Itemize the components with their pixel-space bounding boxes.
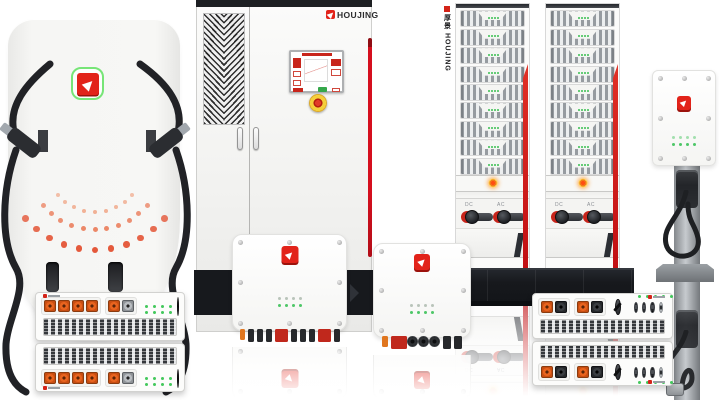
- power-module: [460, 139, 525, 156]
- screw-icon: [461, 328, 466, 333]
- status-leds-row2: [672, 143, 675, 146]
- module-handle: [478, 122, 508, 131]
- status-leds-row1: [278, 297, 281, 300]
- panel-separator: [456, 375, 529, 382]
- cable-right-upper: [140, 64, 179, 132]
- screw-icon: [238, 321, 243, 326]
- brand-logo-icon: ▶: [414, 254, 430, 270]
- terminal-black: [443, 336, 451, 349]
- screw-icon: [337, 390, 342, 395]
- module-leds: [578, 109, 580, 111]
- round-connector: [634, 367, 638, 378]
- screw-icon: [706, 76, 711, 81]
- dc-switch-label: DC: [465, 366, 473, 372]
- vent-grille: [43, 318, 177, 336]
- screw-icon: [658, 116, 663, 121]
- tower-accent-stripe: [613, 64, 618, 269]
- port-pair: [574, 363, 606, 381]
- brand-chip: [648, 380, 665, 384]
- screw-icon: [337, 321, 342, 326]
- screw-icon: [379, 390, 384, 395]
- status-leds: [638, 381, 641, 384]
- wallbox-2-face: ▶: [373, 243, 471, 355]
- arrow-cursor-icon: ▶: [416, 256, 427, 267]
- ac-switch-label: AC: [497, 202, 505, 208]
- power-module: [550, 10, 615, 27]
- module-handle: [568, 85, 598, 94]
- brand-wordmark-vertical: 厚景 HOUJING: [442, 14, 452, 72]
- aux-ports: [105, 297, 137, 315]
- module-handle: [568, 67, 598, 76]
- power-module: [460, 10, 525, 27]
- terminal-strip: [232, 329, 347, 342]
- hmi-header: [302, 53, 332, 56]
- module-handle: [478, 48, 508, 57]
- module-handle: [568, 11, 598, 20]
- wallbox-charger-1: ▶: [232, 234, 347, 347]
- vent-grille: [540, 319, 665, 334]
- status-light: [578, 179, 587, 188]
- status-leds-row1: [410, 304, 413, 307]
- tower-accent-stripe: [523, 306, 528, 400]
- dark-trim: [604, 233, 614, 257]
- connector-row: [538, 296, 667, 318]
- ac-rotary-switch[interactable]: AC: [493, 205, 527, 225]
- hmi-tile: [332, 88, 340, 92]
- screw-icon: [337, 280, 342, 285]
- module-leds: [578, 146, 580, 148]
- dark-trim: [514, 233, 524, 257]
- arrow-cursor-icon: ▶: [284, 374, 295, 385]
- terminal-red: [318, 329, 331, 342]
- module-handle: [568, 103, 598, 112]
- module-leds: [488, 72, 490, 74]
- round-connector-metal: [659, 302, 663, 313]
- switch-knob: [497, 350, 511, 364]
- terminal-black: [454, 336, 462, 349]
- charger-cable: [658, 190, 714, 270]
- terminal-black: [266, 329, 272, 342]
- arrow-cursor-icon: ▶: [679, 98, 689, 108]
- screw-icon: [658, 76, 663, 81]
- power-module: [460, 47, 525, 64]
- screw-icon: [706, 156, 711, 161]
- module-leds: [488, 90, 490, 92]
- switch-knob: [587, 210, 601, 224]
- screw-icon: [238, 280, 243, 285]
- terminal-black: [248, 329, 254, 342]
- logo-red-square: ▶: [326, 10, 335, 19]
- ac-switch-label: AC: [587, 202, 595, 208]
- screw-icon: [379, 328, 384, 333]
- module-handle: [568, 48, 598, 57]
- status-light: [578, 386, 587, 395]
- cabinet-top-strip: [196, 0, 372, 7]
- arrow-cursor-icon: ▶: [416, 376, 427, 387]
- rack-module: [35, 292, 185, 341]
- rotary-knob[interactable]: [615, 299, 621, 315]
- module-handle: [568, 122, 598, 131]
- ac-rotary-switch: AC: [493, 349, 527, 369]
- brand-chip: [43, 386, 60, 390]
- cooling-fan-icon: [177, 297, 179, 316]
- brand-chip: [43, 294, 60, 298]
- wallbox-housing: [373, 355, 471, 400]
- screw-icon: [337, 349, 342, 354]
- terminal-black: [334, 329, 340, 342]
- module-stack: [456, 8, 529, 175]
- power-module: [550, 139, 615, 156]
- power-module: [460, 66, 525, 83]
- round-connector: [642, 367, 646, 378]
- screw-icon: [658, 156, 663, 161]
- module-handle: [568, 30, 598, 39]
- module-leds: [578, 72, 580, 74]
- dc-switch-label: DC: [555, 202, 563, 208]
- hmi-menu-item: [293, 71, 301, 77]
- power-module: [460, 29, 525, 46]
- status-light-band: [456, 382, 529, 399]
- cooling-fan-icon: [177, 369, 179, 388]
- round-connector-metal: [659, 367, 663, 378]
- terminal-black: [291, 329, 297, 342]
- charging-gun-left: [0, 120, 43, 160]
- switch-red-cap: [493, 351, 505, 363]
- screw-icon: [461, 249, 466, 254]
- dc-switch-label: DC: [465, 202, 473, 208]
- screw-icon: [238, 240, 243, 245]
- terminal-red: [275, 329, 288, 342]
- terminal-round: [418, 336, 429, 347]
- status-leds-row2: [278, 304, 281, 307]
- wallbox-charger-2: ▶: [373, 243, 471, 355]
- cable-left-lower: [5, 150, 26, 392]
- hmi-menu-item: [293, 80, 301, 86]
- switch-knob: [497, 210, 511, 224]
- screw-icon: [420, 249, 425, 254]
- emergency-stop-button[interactable]: [309, 94, 327, 112]
- hmi-screen[interactable]: [289, 50, 344, 93]
- module-leds: [578, 54, 580, 56]
- port-pair: [574, 298, 606, 316]
- screw-icon: [682, 76, 687, 81]
- terminal-black: [309, 329, 315, 342]
- wallbox-1-face: ▶: [232, 234, 347, 347]
- terminal-round: [429, 336, 440, 347]
- terminal-red: [391, 336, 407, 349]
- status-leds-row1: [672, 136, 675, 139]
- rotary-knob[interactable]: [615, 364, 621, 380]
- screw-icon: [238, 390, 243, 395]
- hmi-tile: [331, 59, 341, 66]
- brand-logo-icon: ▶: [281, 371, 298, 388]
- power-module-rack-left: [35, 292, 185, 392]
- power-module: [460, 158, 525, 175]
- round-connector: [650, 367, 654, 378]
- module-leds: [578, 90, 580, 92]
- screw-icon: [420, 390, 425, 395]
- status-leds: [638, 295, 641, 298]
- wallbox-housing: [652, 70, 716, 166]
- tower-accent-stripe: [523, 64, 528, 269]
- switch-knob: [465, 210, 479, 224]
- module-handle: [478, 67, 508, 76]
- screw-icon: [238, 349, 243, 354]
- arrow-cursor-icon: ▶: [284, 249, 295, 260]
- connector-row: [41, 295, 179, 317]
- screw-icon: [420, 328, 425, 333]
- dc-output-ports: [41, 369, 101, 387]
- switch-panel: DCAC: [546, 199, 619, 229]
- power-module: [550, 66, 615, 83]
- power-module: [460, 102, 525, 119]
- aux-ports: [105, 369, 137, 387]
- module-leds: [578, 164, 580, 166]
- cable-left-upper: [13, 64, 50, 132]
- module-leds: [488, 109, 490, 111]
- port-pair: [538, 363, 570, 381]
- screw-icon: [682, 156, 687, 161]
- status-light-band: [456, 175, 529, 192]
- brand-logo-icon: ▶: [677, 96, 691, 110]
- rack-module: [35, 343, 185, 392]
- panel-separator: [456, 192, 529, 199]
- logo-red-square: [444, 6, 450, 12]
- wallbox-1-face: ▶: [232, 347, 347, 400]
- connector-row: [41, 367, 179, 389]
- screw-icon: [337, 240, 342, 245]
- status-light-band: [546, 175, 619, 192]
- status-light: [488, 179, 497, 188]
- module-leds: [488, 164, 490, 166]
- switch-panel: DCAC: [456, 199, 529, 229]
- module-leds: [578, 17, 580, 19]
- power-module: [550, 29, 615, 46]
- round-connector: [634, 302, 638, 313]
- power-tower-2: DCAC: [545, 3, 620, 268]
- power-module: [550, 121, 615, 138]
- power-module: [460, 121, 525, 138]
- cabinet-base-right: [346, 270, 374, 315]
- terminal-round: [407, 336, 418, 347]
- switch-knob: [555, 210, 569, 224]
- wallbox-2-face-reflection: ▶: [373, 355, 471, 400]
- power-module: [460, 84, 525, 101]
- module-leds: [488, 127, 490, 129]
- module-handle: [478, 103, 508, 112]
- module-handle: [478, 85, 508, 94]
- terminal-black: [257, 329, 263, 342]
- module-leds: [578, 35, 580, 37]
- status-leds-row2: [410, 311, 413, 314]
- port-pair: [538, 298, 570, 316]
- door-handle-right[interactable]: [253, 127, 259, 150]
- terminal-black: [300, 329, 306, 342]
- accent-stripe: [368, 38, 373, 257]
- module-leds: [578, 127, 580, 129]
- terminal-orange: [382, 336, 388, 347]
- module-handle: [568, 140, 598, 149]
- hmi-status-bar: [293, 88, 303, 92]
- tower-brand-vertical: 厚景 HOUJING: [440, 6, 453, 72]
- ac-rotary-switch[interactable]: AC: [583, 205, 617, 225]
- screw-icon: [287, 240, 292, 245]
- screw-icon: [287, 390, 292, 395]
- brand-wordmark: HOUJING: [337, 10, 379, 20]
- status-light: [488, 386, 497, 395]
- arrow-cursor-icon: ▶: [325, 9, 335, 19]
- module-handle: [478, 140, 508, 149]
- power-module: [550, 47, 615, 64]
- brand-chip: [648, 295, 665, 299]
- power-tower-1: DCAC: [455, 3, 530, 268]
- round-connector: [650, 302, 654, 313]
- door-handle-left[interactable]: [237, 127, 243, 150]
- module-leds: [488, 35, 490, 37]
- hmi-tile: [331, 69, 341, 76]
- screw-icon: [706, 116, 711, 121]
- screw-icon: [461, 288, 466, 293]
- wallbox-1-face-reflection: ▶: [232, 347, 347, 400]
- product-showcase: ▶: [0, 0, 719, 400]
- hmi-chart: [304, 59, 328, 82]
- rack-module: [532, 341, 673, 387]
- wallbox-2-face: ▶: [373, 355, 471, 400]
- module-leds: [488, 17, 490, 19]
- ventilation-grille-chevron: [203, 13, 245, 125]
- power-module: [550, 158, 615, 175]
- module-stack: [546, 8, 619, 175]
- terminal-strip: [373, 336, 471, 349]
- vent-grille: [43, 347, 177, 365]
- module-handle: [478, 159, 508, 168]
- power-module-rack-right: [532, 293, 673, 386]
- rack-module: [532, 293, 673, 339]
- vent-grille: [540, 345, 665, 360]
- module-handle: [478, 30, 508, 39]
- panel-separator: [546, 192, 619, 199]
- screw-icon: [461, 390, 466, 395]
- switch-handle: [499, 353, 525, 361]
- dc-output-ports: [41, 297, 101, 315]
- status-leds: [145, 377, 177, 380]
- lower-panel: [546, 229, 619, 258]
- module-leds: [488, 146, 490, 148]
- screw-icon: [379, 249, 384, 254]
- screw-icon: [379, 288, 384, 293]
- module-handle: [478, 11, 508, 20]
- module-handle: [568, 159, 598, 168]
- dc-rotary-switch[interactable]: DC: [551, 205, 585, 225]
- wall-charger-right: ▶: [652, 70, 716, 166]
- hmi-ok-button: [318, 87, 327, 92]
- brand-logo-icon: ▶: [281, 246, 298, 263]
- power-module: [550, 84, 615, 101]
- round-connector: [642, 302, 646, 313]
- dark-trim: [514, 317, 524, 341]
- dc-rotary-switch[interactable]: DC: [461, 205, 495, 225]
- brand-logo-icon: ▶: [414, 373, 430, 389]
- hmi-logo: [293, 58, 301, 68]
- brand-logo: ▶ HOUJING: [326, 9, 379, 20]
- screw-icon: [287, 321, 292, 326]
- terminal-orange: [240, 329, 245, 340]
- ac-switch-label: AC: [497, 366, 505, 372]
- module-leds: [488, 54, 490, 56]
- wallbox-housing: [232, 347, 347, 400]
- connector-row: [538, 361, 667, 383]
- status-leds: [145, 305, 177, 308]
- power-module: [550, 102, 615, 119]
